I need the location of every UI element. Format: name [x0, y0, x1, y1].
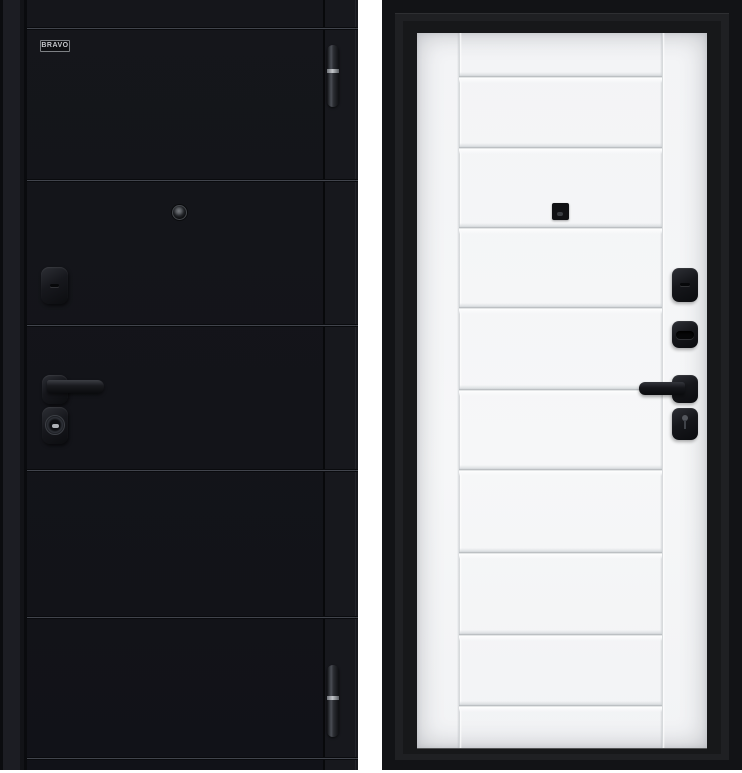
hinge-bottom	[327, 665, 339, 737]
left-door-photo: BRAVO	[0, 0, 358, 770]
cylinder-escutcheon	[42, 407, 68, 444]
hinge-band	[327, 69, 339, 73]
latch-slot	[680, 283, 690, 286]
latch-slot	[50, 284, 59, 287]
peephole-icon	[552, 203, 569, 220]
brand-logo-plate: BRAVO	[40, 40, 70, 52]
hline	[459, 303, 662, 314]
hline	[459, 72, 662, 83]
peephole-icon	[172, 205, 187, 220]
left-door-frame-edge	[0, 0, 27, 770]
hline	[459, 385, 662, 396]
product-image: BRAVO	[0, 0, 742, 773]
hline	[459, 630, 662, 641]
hinge-band	[327, 696, 339, 700]
hline	[459, 701, 662, 712]
right-door-leaf	[417, 33, 707, 748]
right-door-photo	[382, 0, 742, 770]
hline	[459, 465, 662, 476]
lever-handle	[639, 382, 685, 395]
thumbturn-escutcheon	[672, 321, 698, 348]
hline	[459, 223, 662, 234]
keyhole-stem	[684, 420, 686, 429]
left-door-leaf: BRAVO	[27, 0, 323, 770]
night-latch-knob	[672, 268, 698, 302]
night-latch-escutcheon	[41, 267, 68, 304]
lever-handle	[47, 380, 104, 393]
left-door-hinge-stile	[323, 0, 358, 770]
hline	[459, 143, 662, 154]
hinge-top	[327, 45, 339, 107]
thumbturn-slot	[676, 331, 694, 339]
cylinder-ring	[45, 415, 65, 435]
hline	[459, 548, 662, 559]
wc-escutcheon	[672, 408, 698, 440]
keyhole-slot	[52, 424, 59, 428]
